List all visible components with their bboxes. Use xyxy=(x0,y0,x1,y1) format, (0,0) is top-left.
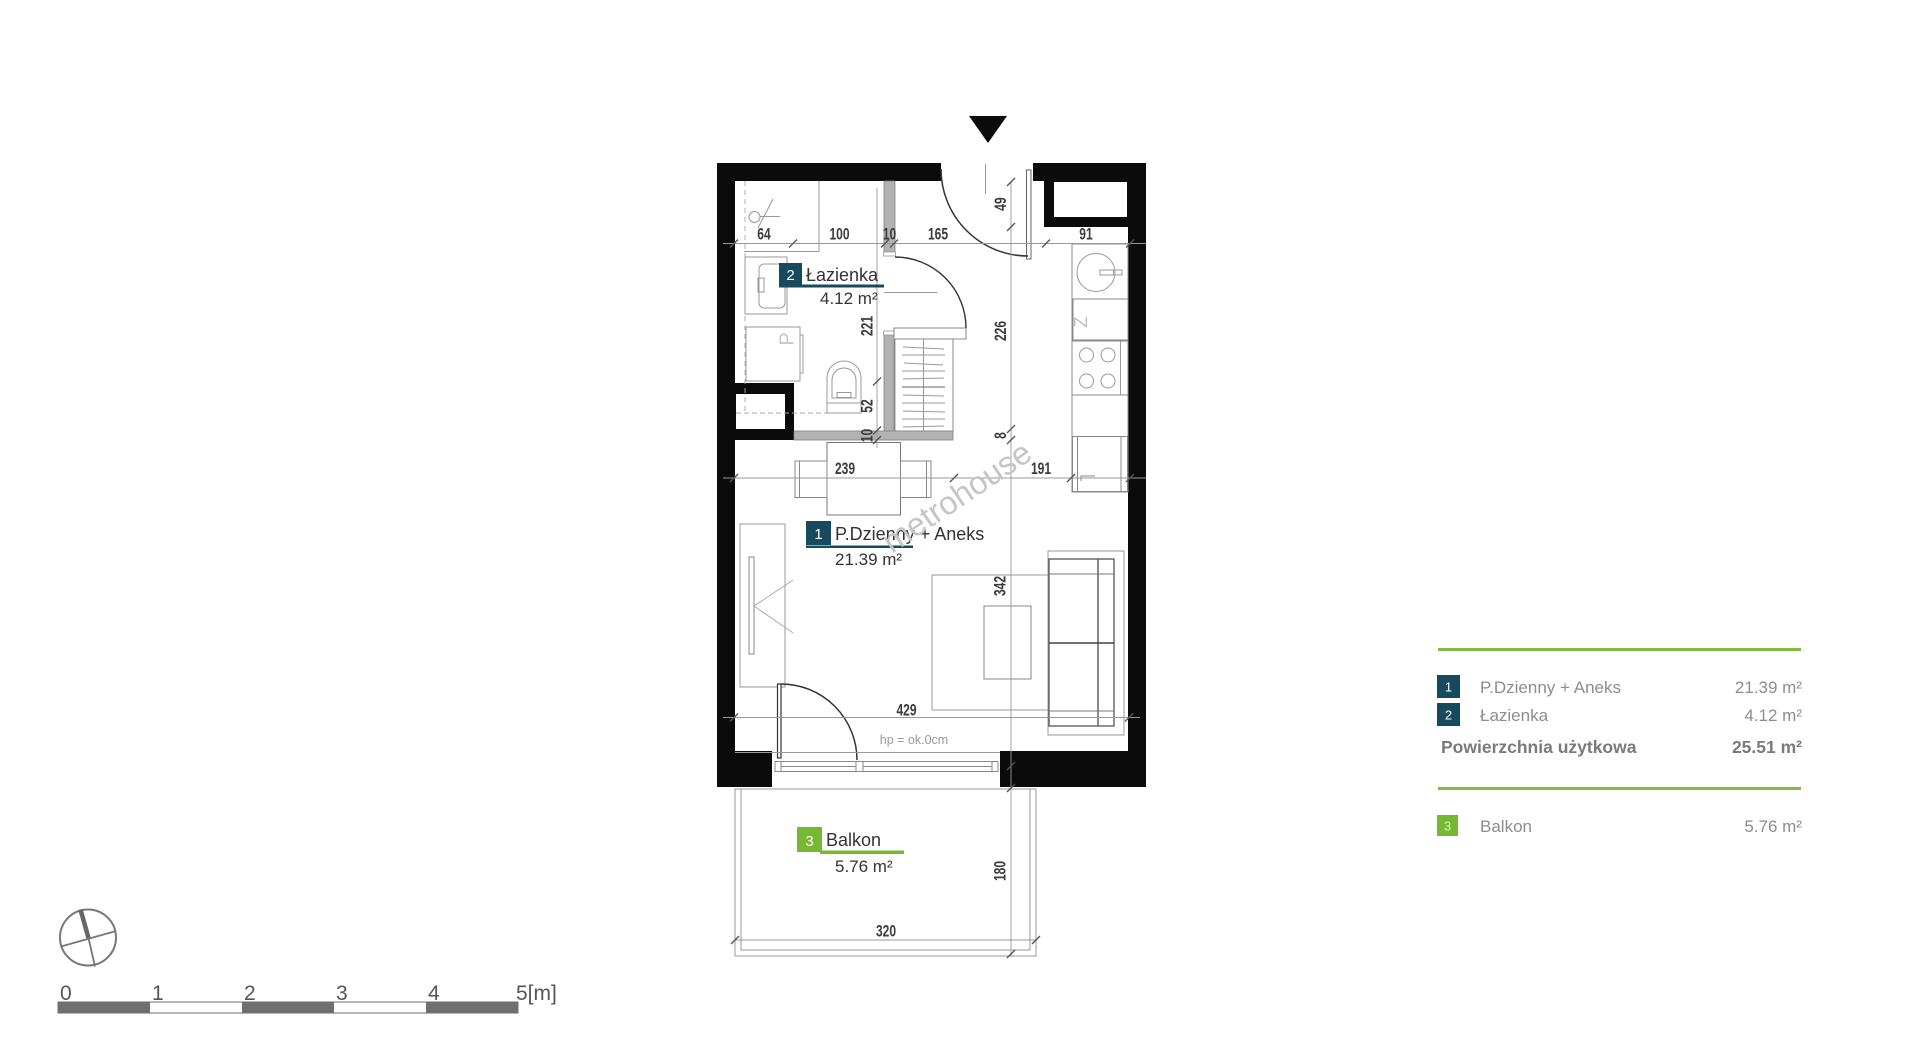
svg-text:180: 180 xyxy=(992,861,1010,881)
svg-text:Balkon: Balkon xyxy=(826,830,881,850)
svg-text:1: 1 xyxy=(1445,680,1452,695)
svg-text:2: 2 xyxy=(786,267,794,284)
svg-text:8: 8 xyxy=(992,432,1010,439)
svg-text:25.51 m²: 25.51 m² xyxy=(1732,737,1802,757)
svg-text:21.39 m²: 21.39 m² xyxy=(1735,678,1802,697)
svg-text:5[m]: 5[m] xyxy=(516,982,557,1005)
svg-text:4.12 m²: 4.12 m² xyxy=(1744,706,1802,725)
svg-text:1: 1 xyxy=(814,526,822,543)
svg-text:5.76 m²: 5.76 m² xyxy=(835,857,893,876)
svg-text:10: 10 xyxy=(859,429,877,442)
svg-text:Łazienka: Łazienka xyxy=(806,265,879,285)
svg-text:52: 52 xyxy=(859,399,877,412)
svg-text:3: 3 xyxy=(805,833,813,850)
svg-text:320: 320 xyxy=(876,923,896,941)
svg-text:429: 429 xyxy=(896,702,916,720)
svg-text:342: 342 xyxy=(992,576,1010,596)
svg-text:hp = ok.0cm: hp = ok.0cm xyxy=(880,733,948,747)
svg-text:100: 100 xyxy=(829,226,849,244)
svg-text:Balkon: Balkon xyxy=(1480,817,1532,836)
svg-text:Powierzchnia użytkowa: Powierzchnia użytkowa xyxy=(1441,737,1637,757)
svg-text:49: 49 xyxy=(992,197,1010,210)
svg-text:P.Dzienny + Aneks: P.Dzienny + Aneks xyxy=(1480,678,1621,697)
svg-text:239: 239 xyxy=(835,460,855,478)
svg-text:Z: Z xyxy=(1071,317,1091,328)
svg-text:Łazienka: Łazienka xyxy=(1480,706,1549,725)
svg-text:64: 64 xyxy=(757,226,770,244)
svg-text:3: 3 xyxy=(1444,819,1451,834)
svg-text:4.12 m²: 4.12 m² xyxy=(820,289,878,308)
svg-text:165: 165 xyxy=(928,226,948,244)
svg-text:221: 221 xyxy=(859,316,877,336)
svg-text:10: 10 xyxy=(883,226,896,244)
svg-text:226: 226 xyxy=(992,321,1010,341)
svg-text:5.76 m²: 5.76 m² xyxy=(1744,817,1802,836)
svg-text:2: 2 xyxy=(1445,708,1452,723)
svg-text:P: P xyxy=(776,332,798,345)
svg-text:91: 91 xyxy=(1079,226,1092,244)
